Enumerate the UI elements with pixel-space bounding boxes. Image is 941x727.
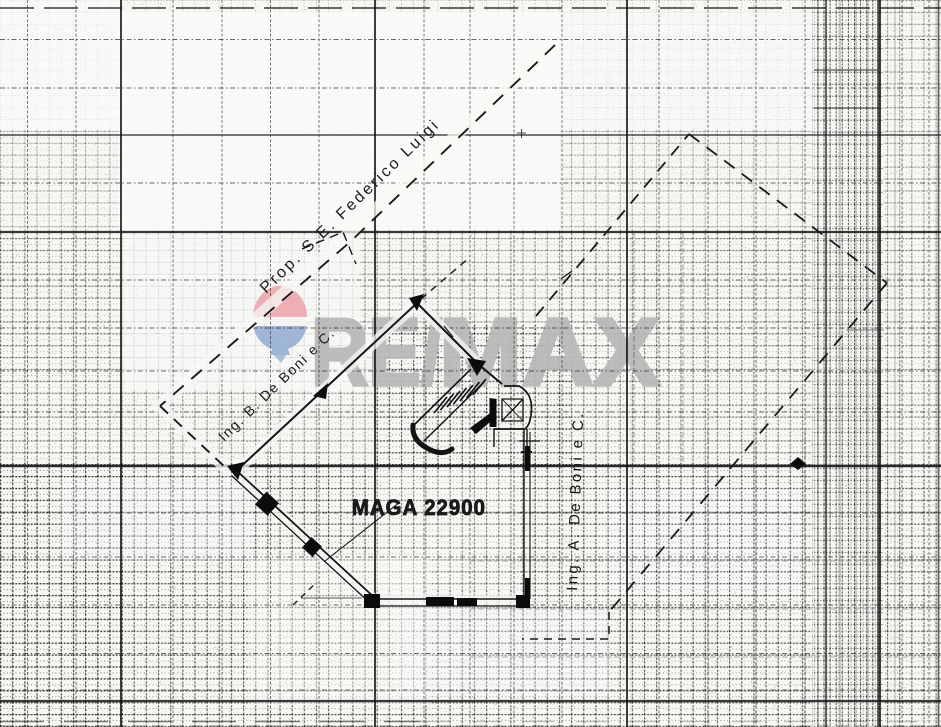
svg-text:MAGA 22900: MAGA 22900 bbox=[352, 496, 486, 520]
